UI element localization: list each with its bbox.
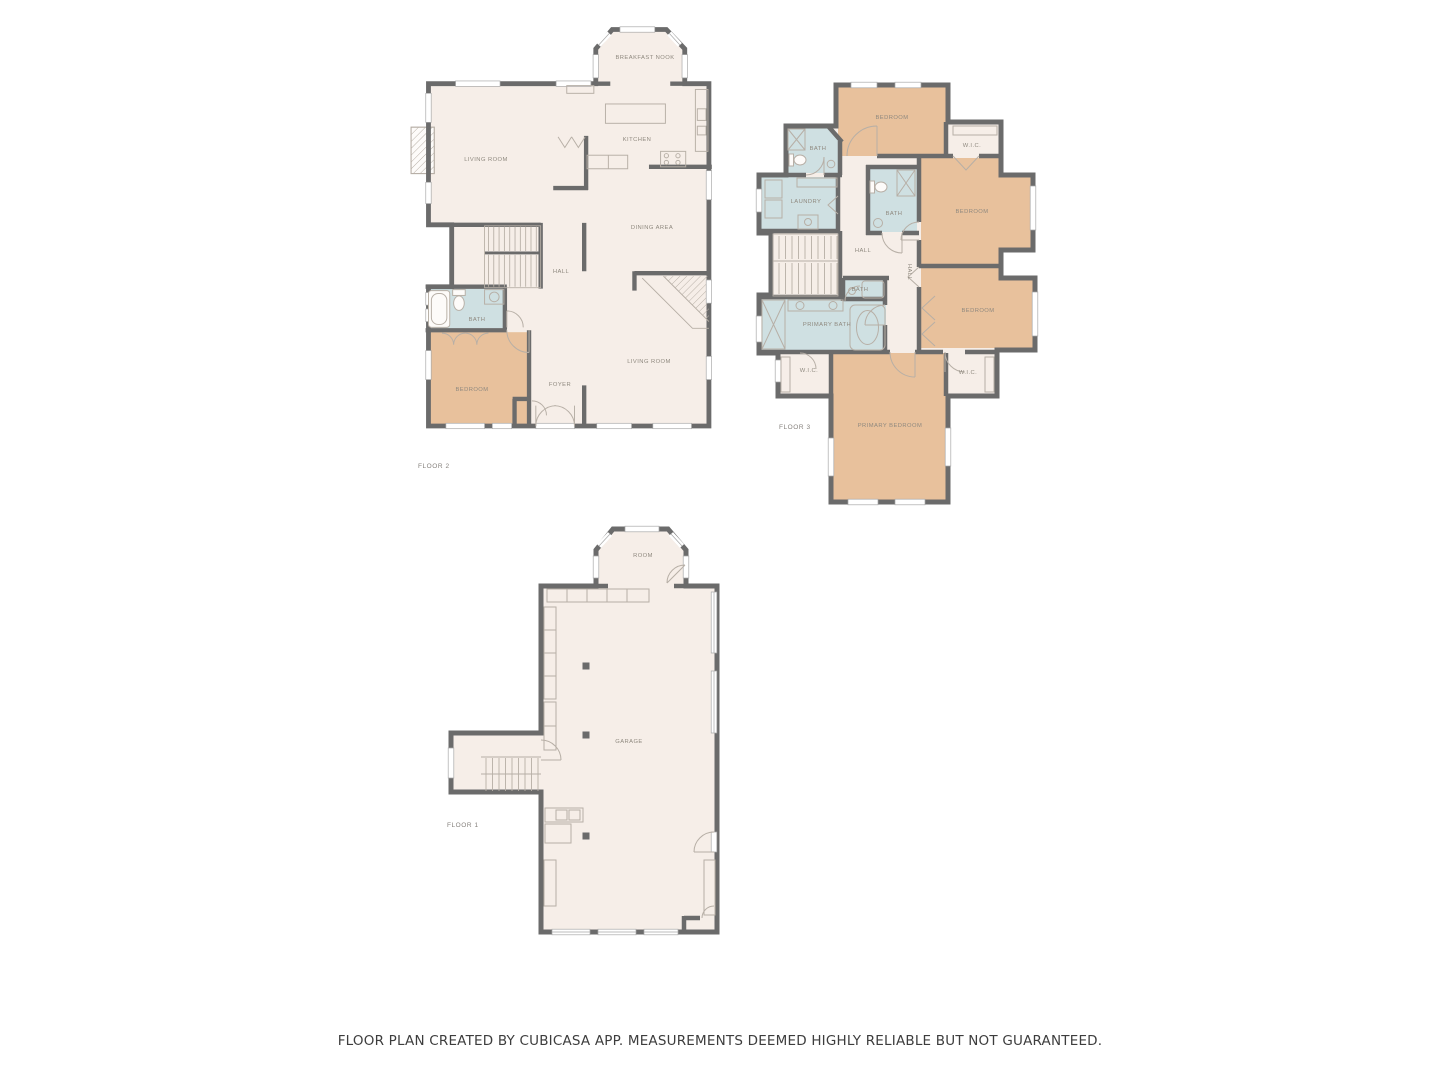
- floor-1-plan: [440, 518, 728, 942]
- floor3-base: [759, 85, 1035, 502]
- floor2-label-bedroom: BEDROOM: [455, 387, 488, 393]
- floor3-title: FLOOR 3: [779, 424, 811, 431]
- floor2-label-bath: BATH: [469, 317, 486, 323]
- floor3-label-wic-top: W.I.C.: [963, 143, 981, 149]
- floor2-label-breakfast-nook: BREAKFAST NOOK: [615, 55, 674, 61]
- floor2-label-living-room-1: LIVING ROOM: [464, 157, 508, 163]
- floor3-label-primary-bath: PRIMARY BATH: [803, 322, 851, 328]
- floor2-label-kitchen: KITCHEN: [623, 137, 652, 143]
- floor3-label-hall-vertical: HALL: [906, 264, 912, 280]
- floor1-title: FLOOR 1: [447, 822, 479, 829]
- floor3-label-primary-bedroom: PRIMARY BEDROOM: [858, 423, 923, 429]
- floor2-label-foyer: FOYER: [549, 382, 571, 388]
- floor2-title: FLOOR 2: [418, 463, 450, 470]
- floor1-label-room: ROOM: [633, 553, 653, 559]
- floor3-label-hall: HALL: [855, 248, 871, 254]
- floor2-label-dining-area: DINING AREA: [631, 225, 673, 231]
- floor3-label-bath-center: BATH: [886, 211, 903, 217]
- floor3-label-bath-top: BATH: [810, 146, 827, 152]
- floor3-label-wic-right: W.I.C.: [959, 370, 977, 376]
- floor2-label-hall: HALL: [553, 269, 569, 275]
- floor-2-plan: [395, 15, 725, 455]
- floor3-label-bedroom-top: BEDROOM: [875, 115, 908, 121]
- floor2-label-living-room-2: LIVING ROOM: [627, 359, 671, 365]
- floor3-label-bedroom-right: BEDROOM: [955, 209, 988, 215]
- floor3-label-laundry: LAUNDRY: [791, 199, 822, 205]
- floor-3-plan: [745, 78, 1045, 510]
- floor3-label-wic-left: W.I.C.: [800, 368, 818, 374]
- floor1-label-garage: GARAGE: [615, 739, 643, 745]
- disclaimer-text: FLOOR PLAN CREATED BY CUBICASA APP. MEAS…: [0, 1033, 1440, 1049]
- floor3-label-bath-small: BATH: [852, 287, 869, 293]
- floor-plan-page: BREAKFAST NOOK KITCHEN LIVING ROOM DININ…: [0, 0, 1440, 1080]
- floor3-label-bedroom-lower: BEDROOM: [961, 308, 994, 314]
